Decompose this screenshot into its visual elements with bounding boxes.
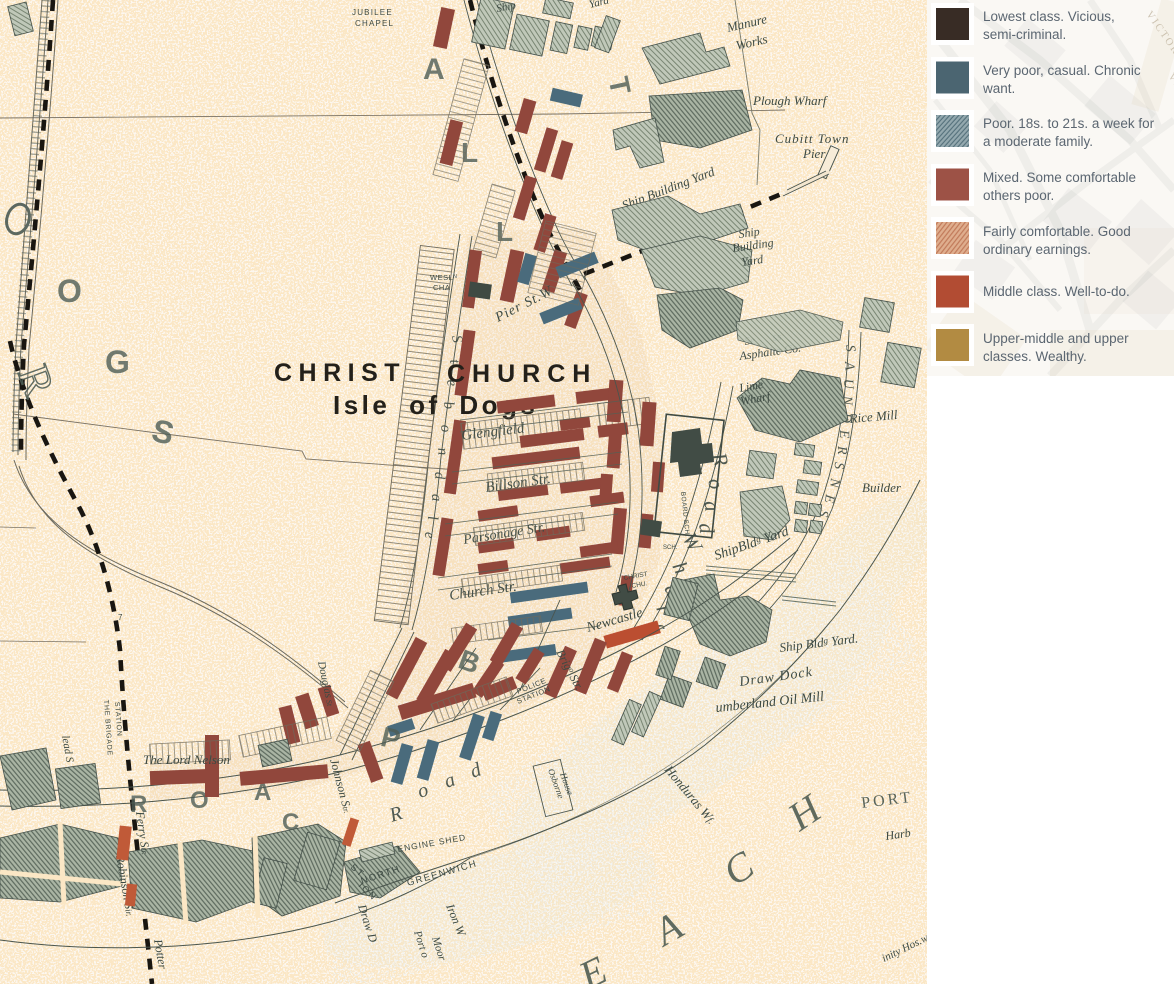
svg-text:CHA.: CHA.	[433, 283, 453, 292]
svg-text:JUBILEE: JUBILEE	[352, 8, 393, 17]
svg-text:l: l	[424, 516, 440, 521]
svg-text:n: n	[434, 447, 450, 456]
svg-text:a: a	[428, 494, 444, 502]
svg-text:Cubitt Town: Cubitt Town	[775, 131, 849, 146]
svg-text:e: e	[421, 532, 437, 540]
svg-text:Middle class. Well-to-do.: Middle class. Well-to-do.	[983, 284, 1130, 299]
svg-text:Plough Wharf: Plough Wharf	[752, 93, 829, 108]
svg-text:SCH.: SCH.	[663, 545, 678, 551]
svg-text:O: O	[57, 273, 82, 309]
svg-text:A: A	[423, 53, 445, 86]
svg-text:G: G	[105, 344, 130, 380]
svg-text:Builder: Builder	[862, 480, 902, 495]
svg-text:CHRIST: CHRIST	[274, 359, 406, 387]
svg-text:CHURCH: CHURCH	[447, 360, 597, 388]
svg-text:S: S	[831, 462, 846, 470]
svg-text:d: d	[431, 472, 447, 481]
svg-text:The Lord Nelson: The Lord Nelson	[143, 752, 230, 767]
svg-text:A: A	[841, 360, 857, 371]
svg-text:7: 7	[118, 613, 123, 622]
svg-text:S: S	[842, 344, 857, 352]
svg-text:E: E	[836, 429, 851, 439]
svg-text:Pier: Pier	[802, 146, 826, 161]
svg-text:CHAPEL: CHAPEL	[355, 19, 394, 28]
svg-text:R: R	[834, 445, 849, 455]
svg-text:N: N	[826, 477, 842, 489]
